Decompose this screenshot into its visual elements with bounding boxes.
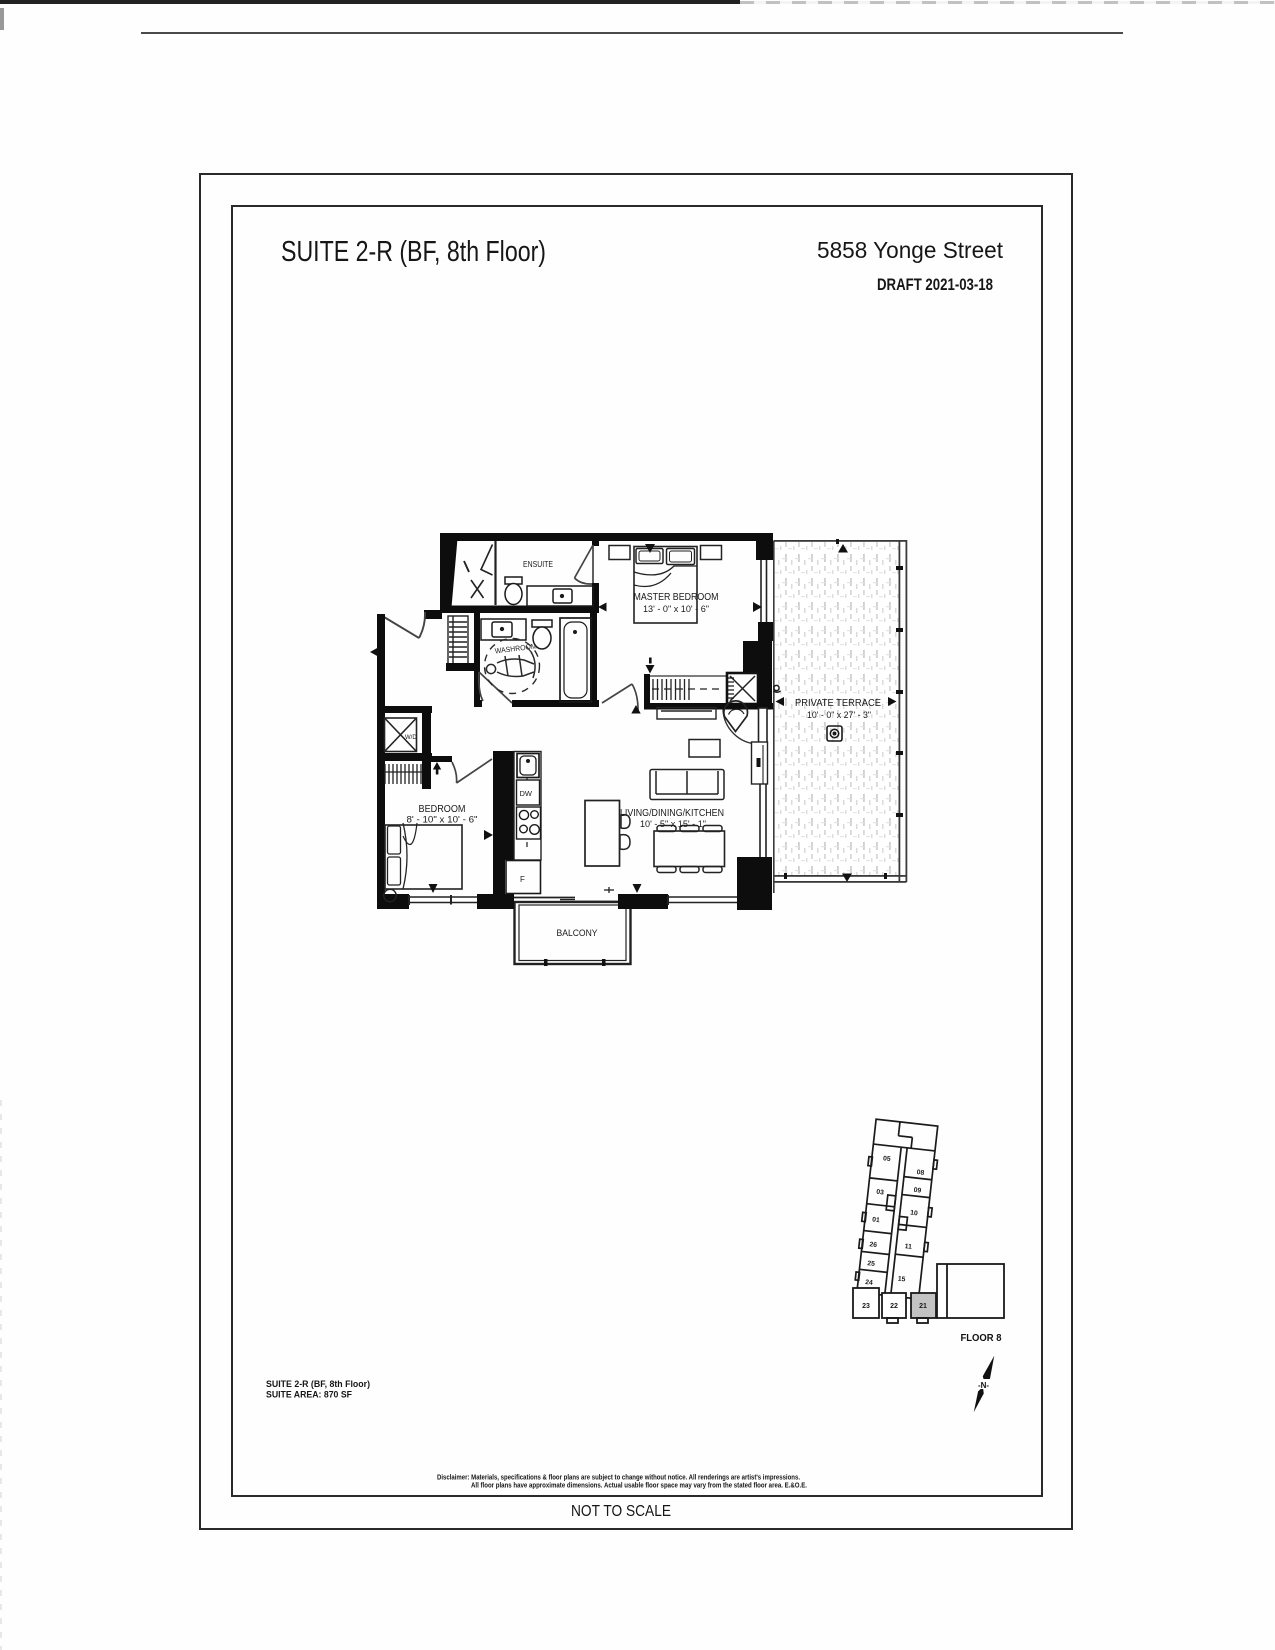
svg-text:21: 21 (919, 1303, 927, 1310)
svg-text:11: 11 (904, 1243, 912, 1251)
svg-text:01: 01 (872, 1216, 881, 1224)
svg-text:24: 24 (865, 1279, 874, 1287)
svg-text:10' - 5" x 15' - 1": 10' - 5" x 15' - 1" (640, 819, 706, 829)
svg-text:05: 05 (883, 1155, 892, 1163)
svg-text:BALCONY: BALCONY (557, 928, 599, 939)
svg-text:22: 22 (890, 1303, 898, 1310)
svg-text:23: 23 (862, 1303, 870, 1310)
svg-text:FLOOR 8: FLOOR 8 (961, 1333, 1002, 1344)
svg-text:LIVING/DINING/KITCHEN: LIVING/DINING/KITCHEN (620, 808, 724, 819)
svg-text:25: 25 (867, 1260, 876, 1268)
svg-text:10: 10 (910, 1210, 919, 1218)
svg-text:ENSUITE: ENSUITE (523, 560, 553, 569)
svg-text:08: 08 (916, 1169, 925, 1177)
svg-text:BEDROOM: BEDROOM (419, 804, 466, 815)
svg-text:-N-: -N- (978, 1381, 989, 1390)
svg-text:WASHROOM: WASHROOM (494, 641, 537, 655)
svg-text:26: 26 (869, 1241, 878, 1249)
svg-text:15: 15 (897, 1276, 906, 1284)
svg-text:09: 09 (913, 1187, 922, 1195)
svg-text:W/D: W/D (405, 735, 417, 741)
svg-text:PRIVATE TERRACE: PRIVATE TERRACE (795, 698, 881, 709)
svg-text:8' - 10" x 10' - 6": 8' - 10" x 10' - 6" (407, 815, 478, 825)
svg-text:03: 03 (876, 1189, 885, 1197)
svg-text:DW: DW (520, 789, 533, 798)
svg-text:MASTER BEDROOM: MASTER BEDROOM (634, 592, 719, 603)
svg-text:F: F (520, 875, 525, 884)
svg-text:13' - 0" x 10' - 6": 13' - 0" x 10' - 6" (643, 604, 709, 614)
svg-text:10' - 0" x 27' - 3": 10' - 0" x 27' - 3" (807, 710, 871, 720)
